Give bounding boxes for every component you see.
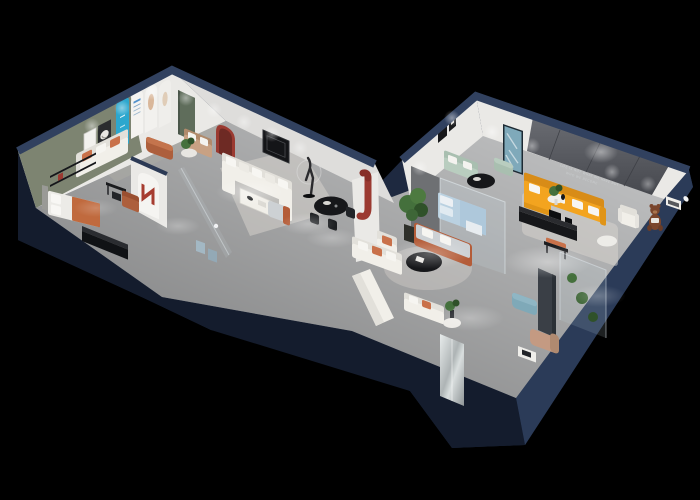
bear-tablet	[651, 218, 659, 223]
white-arch-poster-text	[131, 89, 143, 139]
white-arch-niche	[159, 78, 171, 128]
armchair-arm	[635, 213, 639, 228]
dark-column-side	[552, 274, 556, 338]
black-round-coffee-table	[467, 174, 495, 189]
bed-headboard	[42, 185, 48, 210]
floorplan-canvas: LIFE IS NOT WHAT WE HAVE BUT WHO WE BECO…	[0, 0, 700, 500]
bear-foot	[647, 225, 652, 231]
display-cactus	[588, 312, 598, 322]
white-round-table	[597, 236, 617, 247]
isometric-floorplan-render: LIFE IS NOT WHAT WE HAVE BUT WHO WE BECO…	[0, 0, 700, 500]
table-tray	[473, 177, 481, 181]
bear-muzzle	[653, 210, 657, 213]
dining-tableware	[323, 201, 331, 205]
armchair-arm	[618, 207, 622, 222]
sofa-armrest	[600, 206, 606, 226]
black-vase	[561, 194, 565, 200]
bear-foot	[658, 225, 663, 231]
